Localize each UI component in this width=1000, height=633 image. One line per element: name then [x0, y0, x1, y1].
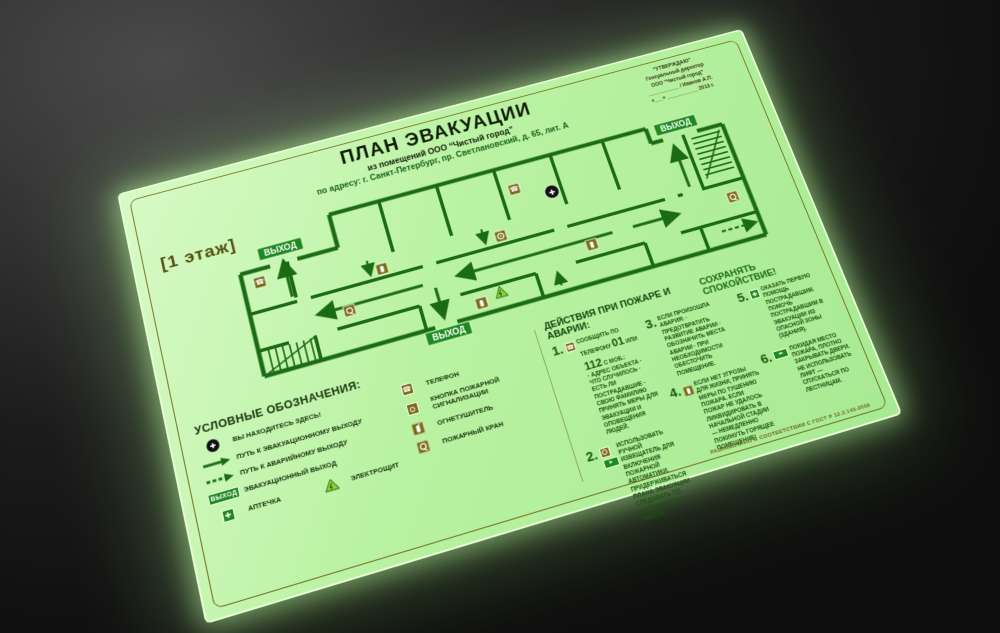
plan-exit-badge-right: ВЫХОД [653, 114, 698, 136]
telephone-icon: ☎ [507, 183, 521, 196]
fire-hose-icon [407, 438, 438, 458]
telephone-icon: ☎ [564, 341, 576, 353]
exit-door-icon: ⬅ [772, 347, 789, 359]
solid-arrow-icon [201, 455, 232, 472]
perspective-scene: ПЛАН ЭВАКУАЦИИ из помещений ООО “Чистый … [107, 48, 887, 553]
fire-extinguisher-icon [402, 419, 433, 438]
telephone-icon: ☎ [400, 382, 414, 396]
action-item-2: 2. ➤ ИСПОЛЬЗОВАТЬ РУЧНОЙ ИЗВЕЩАТЕЛЬ ДЛЯ … [584, 426, 702, 535]
exit-sign-icon: ВЫХОД [207, 486, 240, 506]
fire-extinguisher-icon [475, 296, 489, 310]
fire-alarm-button-icon [405, 402, 419, 416]
phone-number-01: 01 [610, 335, 626, 350]
electrical-panel-icon [493, 285, 508, 299]
you-are-here-icon: ✚ [543, 183, 561, 200]
plan-exit-badge-left: ВЫХОД [257, 237, 304, 261]
fire-alarm-button-icon [494, 230, 508, 243]
first-aid-icon: ✚ [221, 507, 235, 522]
running-man-exit-icon: ➤ [602, 456, 620, 469]
electrical-panel-icon [315, 474, 347, 495]
telephone-icon: ☎ [253, 276, 267, 289]
evacuation-plan-sign: ПЛАН ЭВАКУАЦИИ из помещений ООО “Чистый … [117, 29, 902, 624]
fire-alarm-button-icon [598, 446, 611, 458]
fire-hose-icon [726, 190, 740, 203]
photo-background: ПЛАН ЭВАКУАЦИИ из помещений ООО “Чистый … [0, 0, 1000, 633]
plan-exit-badge-bottom: ВЫХОД [425, 321, 473, 346]
first-aid-icon: ✚ [749, 288, 761, 299]
you-are-here-icon: ✚ [205, 438, 220, 454]
fire-extinguisher-icon [375, 262, 389, 275]
dashed-arrow-icon [205, 470, 236, 487]
emergency-route-arrow [722, 222, 754, 231]
